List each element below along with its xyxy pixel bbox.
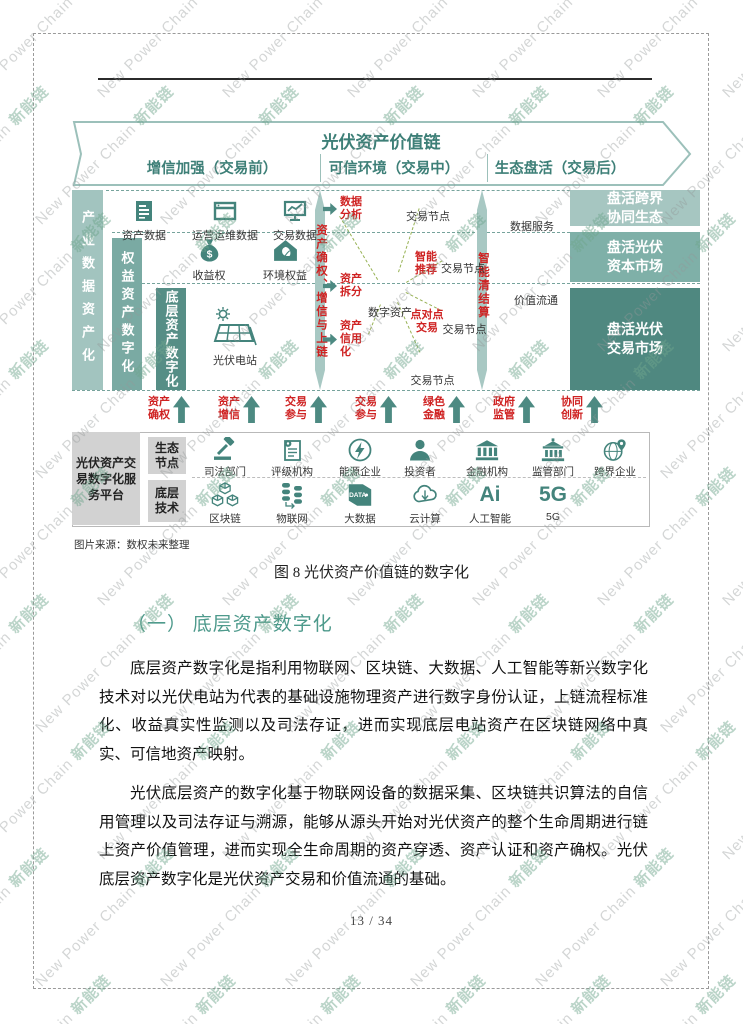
eco-node-label: 跨界企业 <box>583 464 647 479</box>
watermark-cjk: 新能链 <box>693 0 739 2</box>
watermark-latin: New Power Chain <box>0 879 18 990</box>
tech-node-label: 区块链 <box>193 511 257 526</box>
watermark-latin: New Power Chain <box>719 244 743 355</box>
doc-data-icon <box>131 198 157 224</box>
value-circulation-label: 价值流通 <box>506 292 566 308</box>
eco-node-label: 评级机构 <box>260 464 324 479</box>
eco-node-label: 生态 节点 <box>148 437 186 474</box>
phase-separator <box>487 154 488 182</box>
value-chain-title: 光伏资产价值链 <box>72 128 690 153</box>
eco-node-label: 司法部门 <box>193 464 257 479</box>
watermark-text: New Power Chain 新能链 <box>717 208 743 356</box>
watermark-latin: New Power Chain <box>219 1006 330 1024</box>
body-bottom-line <box>72 390 700 391</box>
watermark-latin: New Power Chain <box>344 1006 455 1024</box>
money-bag-icon: $ <box>196 237 223 264</box>
row1-label: 资产数据 <box>102 227 186 243</box>
globe-pin-icon <box>602 437 628 463</box>
bigdata-icon: DATA <box>346 481 374 509</box>
house-leaf-icon <box>272 237 299 264</box>
bottom-arrow-item: 交易 参与 <box>285 396 327 423</box>
tech-node-label: 大数据 <box>328 511 392 526</box>
phase-separator <box>320 154 321 182</box>
figure-caption: 图 8 光伏资产价值链的数字化 <box>33 561 710 582</box>
data-service-icon <box>514 192 540 216</box>
box-capital-market: 盘活光伏 资本市场 <box>570 232 700 282</box>
page-number: 13 / 34 <box>33 913 710 929</box>
figure-source-note: 图片来源：数权未来整理 <box>74 537 190 552</box>
svg-text:$: $ <box>206 249 212 260</box>
bottom-arrow-label: 资产 增信 <box>218 396 240 422</box>
trade-node-icon <box>448 238 472 258</box>
watermark-latin: New Power Chain <box>719 0 743 101</box>
up-block-arrow-icon <box>173 396 190 423</box>
energy-icon <box>347 437 373 463</box>
bottom-arrow-item: 绿色 金融 <box>423 396 465 423</box>
up-block-arrow-icon <box>380 396 397 423</box>
bottom-arrow-label: 政府 监管 <box>493 396 515 422</box>
trade-node-label: 交易节点 <box>438 260 488 276</box>
watermark-cjk: 新能链 <box>193 0 239 2</box>
watermark-text: New Power Chain 新能链 <box>717 970 743 1024</box>
right-block-arrow-icon <box>323 203 337 215</box>
bottom-arrow-label: 协同 创新 <box>561 396 583 422</box>
trade-node-label: 交易节点 <box>405 372 460 388</box>
right-block-arrow-icon <box>323 334 337 346</box>
right-block-arrow-icon <box>323 280 337 292</box>
red-step-label: 资产 拆分 <box>340 273 362 299</box>
blockchain-icon <box>211 481 239 509</box>
watermark-latin: New Power Chain <box>469 1006 580 1024</box>
phase-pre-trade: 增信加强（交易前） <box>127 157 297 178</box>
smart-recommend-label: 智能 推荐 <box>415 251 437 277</box>
iot-icon <box>278 481 306 509</box>
up-block-arrow-icon <box>310 396 327 423</box>
red-step-item: 数据 分析 <box>323 196 362 222</box>
bottom-arrow-item: 交易 参与 <box>355 396 397 423</box>
investor-icon <box>407 437 433 463</box>
red-step-item: 资产 拆分 <box>323 273 362 299</box>
bar-underlying-asset: 底层资产数字化 <box>156 288 186 390</box>
rating-doc-icon <box>279 437 305 463</box>
trade-node-label: 交易节点 <box>437 321 492 337</box>
phase-post-trade: 生态盘活（交易后） <box>475 157 645 178</box>
watermark-latin: New Power Chain <box>94 1006 205 1024</box>
digital-asset-icon <box>372 270 408 302</box>
window-icon <box>212 198 238 224</box>
watermark-latin: New Power Chain <box>0 117 18 228</box>
watermark-text: New Power Chain 新能链 <box>717 462 743 610</box>
up-block-arrow-icon <box>448 396 465 423</box>
document-page: 光伏资产价值链 增信加强（交易前） 可信环境（交易中） 生态盘活（交易后） 产业… <box>0 0 743 1024</box>
bottom-arrow-item: 资产 确权 <box>148 396 190 423</box>
watermark-cjk: 新能链 <box>443 0 489 2</box>
row2-label: 收益权 <box>174 267 244 283</box>
trade-node-icon <box>413 350 437 370</box>
watermark-latin: New Power Chain <box>0 1006 80 1024</box>
row3-label: 光伏电站 <box>200 352 270 368</box>
tech-label: 底层 技术 <box>148 480 186 522</box>
up-block-arrow-icon <box>586 396 603 423</box>
svg-text:DATA: DATA <box>349 492 366 499</box>
eco-node-label: 能源企业 <box>328 464 392 479</box>
bottom-arrow-item: 协同 创新 <box>561 396 603 423</box>
value-circulation-icon <box>518 258 546 286</box>
bottom-arrow-label: 绿色 金融 <box>423 396 445 422</box>
red-step-label: 数据 分析 <box>340 196 362 222</box>
bottom-arrow-item: 政府 监管 <box>493 396 535 423</box>
watermark-latin: New Power Chain <box>719 1006 743 1024</box>
section-heading: （一） 底层资产数字化 <box>127 609 333 636</box>
platform-title: 光伏资产交易数字化服务平台 <box>72 432 140 525</box>
bottom-arrow-item: 资产 增信 <box>218 396 260 423</box>
watermark-latin: New Power Chain <box>719 752 743 863</box>
watermark-latin: New Power Chain <box>0 371 18 482</box>
bank-icon <box>474 437 500 463</box>
red-step-item: 资产 信用 化 <box>323 320 362 359</box>
watermark-text: New Power Chain 新能链 <box>717 0 743 102</box>
header-rule <box>98 78 652 80</box>
ai-icon-text: Ai <box>465 483 515 507</box>
gov-icon <box>540 437 566 463</box>
bottom-arrow-label: 交易 参与 <box>355 396 377 422</box>
figure-diagram: 光伏资产价值链 增信加强（交易前） 可信环境（交易中） 生态盘活（交易后） 产业… <box>72 120 702 532</box>
watermark-latin: New Power Chain <box>594 1006 705 1024</box>
data-service-label: 数据服务 <box>502 218 562 234</box>
bar-equity-asset: 权益资产数字化 <box>112 238 142 390</box>
tech-node-label: 物联网 <box>260 511 324 526</box>
watermark-cjk: 新能链 <box>318 0 364 2</box>
monitor-chart-icon <box>282 198 308 224</box>
box-cross-ecosystem: 盘活跨界 协同生态 <box>570 190 700 226</box>
watermark-latin: New Power Chain <box>719 498 743 609</box>
cloud-icon <box>411 481 439 509</box>
bottom-arrow-label: 交易 参与 <box>285 396 307 422</box>
row2-label: 环境权益 <box>250 267 320 283</box>
trade-node-icon <box>445 299 469 319</box>
red-step-label: 资产 信用 化 <box>340 320 362 359</box>
watermark-cjk: 新能链 <box>68 0 114 2</box>
body-paragraph: 底层资产数字化是指利用物联网、区块链、大数据、人工智能等新兴数字化技术对以光伏电… <box>99 655 648 769</box>
watermark-latin: New Power Chain <box>0 625 18 736</box>
bar-industry-data: 产业数据资产化 <box>72 190 103 390</box>
body-paragraph: 光伏底层资产的数字化基于物联网设备的数据采集、区块链共识算法的自信用管理以及司法… <box>99 780 648 894</box>
tech-node-label: 云计算 <box>393 511 457 526</box>
watermark-cjk: 新能链 <box>568 0 614 2</box>
gavel-icon <box>212 437 238 463</box>
up-block-arrow-icon <box>518 396 535 423</box>
up-block-arrow-icon <box>243 396 260 423</box>
box-trading-market: 盘活光伏 交易市场 <box>570 288 700 390</box>
trade-node-icon <box>415 186 439 206</box>
phase-in-trade: 可信环境（交易中） <box>309 157 479 178</box>
eco-node-label: 金融机构 <box>455 464 519 479</box>
eco-node-label: 投资者 <box>388 464 452 479</box>
5g-icon-text: 5G <box>528 483 578 507</box>
solar-plant-icon <box>210 305 260 350</box>
watermark-text: New Power Chain 新能链 <box>717 716 743 864</box>
tech-node-label: 5G <box>521 511 585 523</box>
trade-node-label: 交易节点 <box>403 208 453 224</box>
bottom-arrow-label: 资产 确权 <box>148 396 170 422</box>
eco-node-label: 监管部门 <box>521 464 585 479</box>
tech-node-label: 人工智能 <box>458 511 522 526</box>
